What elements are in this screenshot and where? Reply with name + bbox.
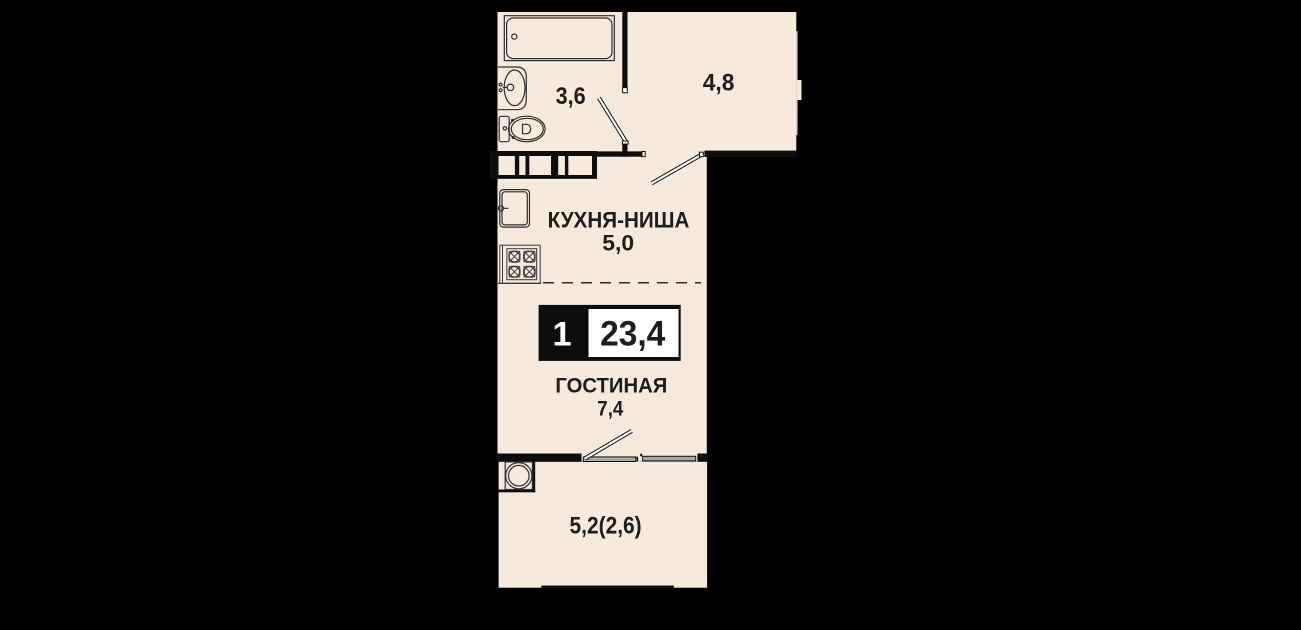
svg-text:3,6: 3,6 — [556, 83, 586, 110]
svg-text:1: 1 — [552, 316, 571, 354]
svg-text:5,2(2,6): 5,2(2,6) — [570, 513, 642, 540]
svg-text:7,4: 7,4 — [597, 397, 623, 421]
svg-text:ГОСТИНАЯ: ГОСТИНАЯ — [555, 373, 667, 397]
svg-text:КУХНЯ-НИША: КУХНЯ-НИША — [548, 208, 690, 233]
svg-text:23,4: 23,4 — [600, 315, 666, 354]
svg-text:4,8: 4,8 — [703, 70, 735, 97]
svg-text:5,0: 5,0 — [602, 231, 634, 256]
